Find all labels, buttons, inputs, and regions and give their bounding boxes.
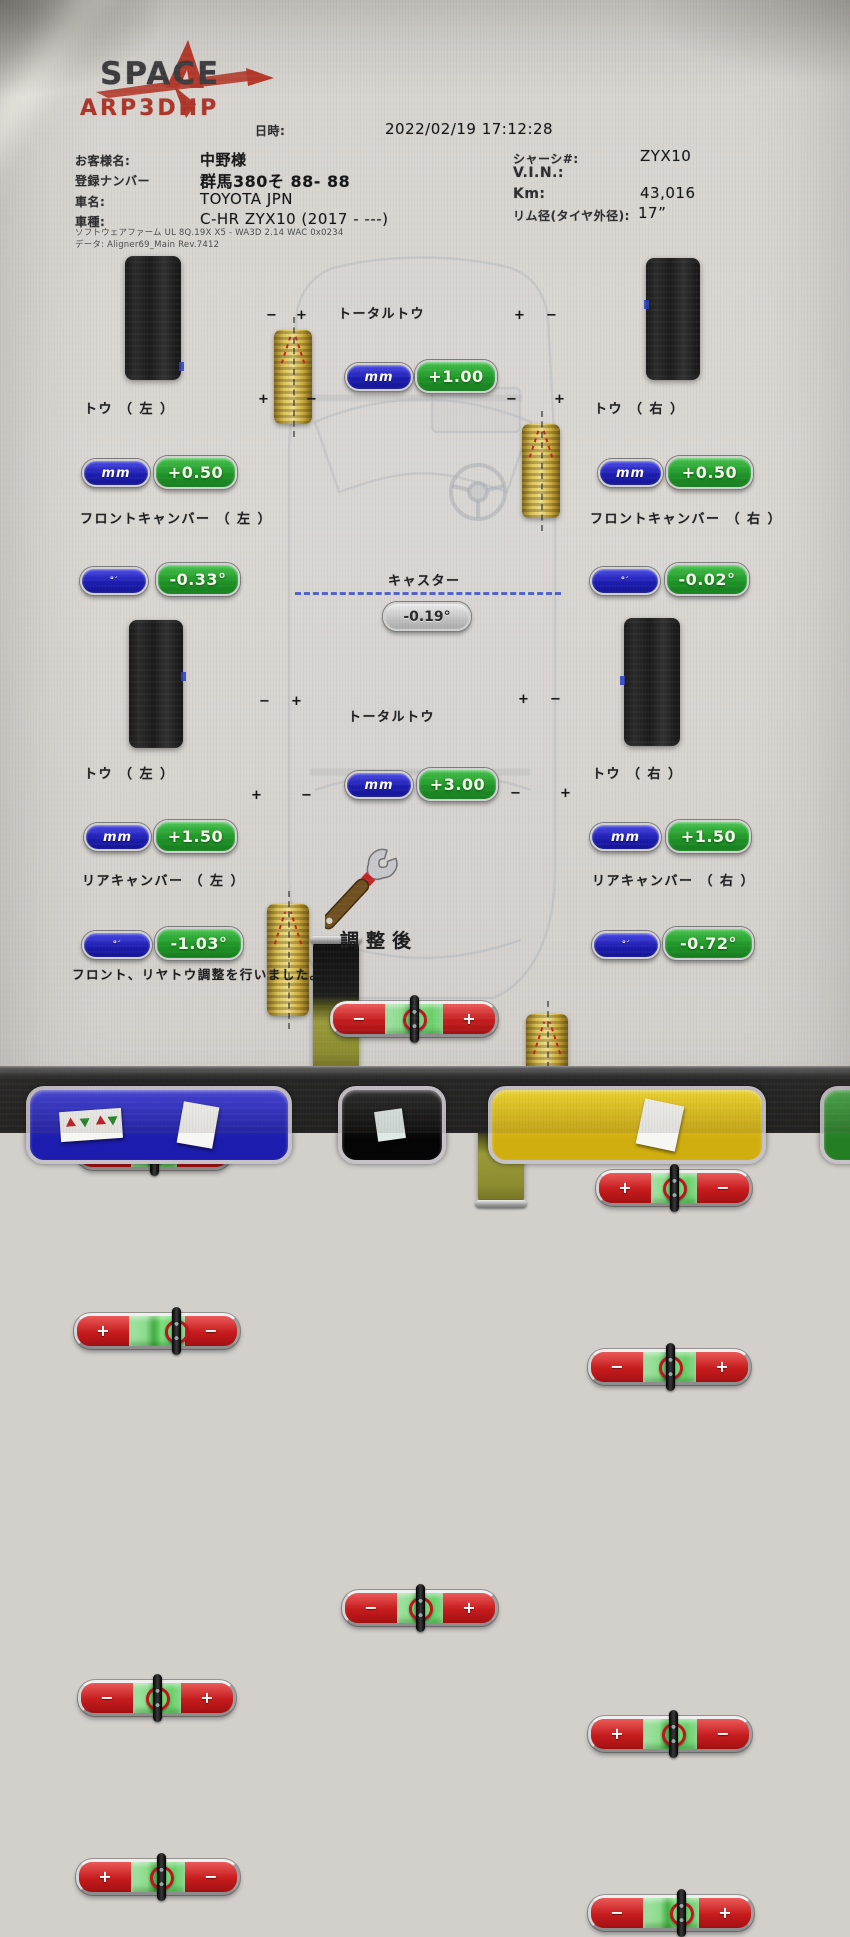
plus-cap: + (591, 1719, 643, 1749)
make-label: 車名: (75, 193, 105, 210)
datetime-value: 2022/02/19 17:12:28 (385, 120, 553, 138)
toe-sign: − (550, 692, 561, 707)
rear-total-toe-unit: mm (345, 771, 413, 799)
rim-label: リム径(タイヤ外径): (513, 207, 630, 224)
rear-toe-right-value: +1.50 (666, 820, 751, 853)
confirm-button[interactable] (820, 1086, 850, 1164)
rear-right-wheel (624, 618, 680, 746)
measurements-button[interactable] (26, 1086, 292, 1164)
front-total-toe-unit: mm (345, 363, 413, 391)
front-total-toe-label: トータルトウ (338, 303, 425, 322)
rear-left-wheel (129, 620, 183, 748)
rear-camber-left-gauge: + − (76, 1859, 240, 1895)
toe-sign: − (266, 308, 277, 323)
toe-sign: + (296, 308, 307, 323)
alignment-report-screen: SPACE ARP3DHP 日時: 2022/02/19 17:12:28 お客… (0, 0, 850, 1133)
plus-cap: + (181, 1683, 233, 1713)
chassis-value: ZYX10 (640, 147, 691, 165)
rear-camber-right-label: リアキャンバー （ 右 ） (592, 870, 755, 889)
rear-camber-right-gauge: − + (588, 1895, 754, 1931)
front-toe-right-gauge: + − (596, 1170, 752, 1206)
sensor-tick (179, 362, 184, 371)
toe-sign: − (259, 694, 270, 709)
front-left-tire-graphic (274, 330, 312, 424)
gauge-indicator (661, 1710, 685, 1758)
print-report-button[interactable] (488, 1086, 766, 1164)
rear-toe-left-value: +1.50 (154, 820, 237, 853)
front-toe-right-value: +0.50 (666, 456, 753, 489)
front-camber-left-label: フロントキャンバー （ 左 ） (80, 508, 272, 527)
plate-value: 群馬380そ 88- 88 (200, 168, 350, 192)
front-toe-right-label: トウ （ 右 ） (594, 398, 685, 417)
minus-cap: − (81, 1683, 133, 1713)
sensor-tick (644, 300, 649, 309)
caster-value: -0.19° (383, 602, 471, 631)
caster-label: キャスター (388, 570, 461, 589)
rear-total-toe-value: +3.00 (417, 768, 498, 801)
front-camber-left-unit: °′ (80, 567, 148, 595)
vin-label: V.I.N.: (513, 165, 564, 181)
datetime-label: 日時: (255, 122, 285, 139)
plus-cap: + (696, 1352, 748, 1382)
front-camber-right-unit: °′ (590, 567, 660, 595)
minus-cap: − (185, 1862, 237, 1892)
sensor-tick (181, 672, 186, 681)
rear-camber-right-value: -0.72° (663, 927, 754, 960)
rear-toe-left-unit: mm (84, 823, 151, 851)
adjustment-status: 調整後 (340, 926, 418, 953)
rear-camber-left-label: リアキャンバー （ 左 ） (82, 870, 245, 889)
caster-reference-line (295, 592, 561, 595)
minus-cap: − (185, 1316, 237, 1346)
gauge-indicator (658, 1343, 682, 1391)
bottom-toolbar (0, 1066, 850, 1133)
rear-toe-right-gauge: + − (588, 1716, 752, 1752)
rear-camber-left-value: -1.03° (155, 927, 243, 960)
plus-cap: + (79, 1862, 131, 1892)
plus-cap: + (599, 1173, 651, 1203)
gauge-indicator (164, 1307, 188, 1355)
minus-cap: − (591, 1352, 643, 1382)
gauge-indicator (669, 1889, 693, 1937)
km-label: Km: (513, 186, 546, 202)
front-right-tire-graphic (522, 424, 560, 518)
minus-cap: − (333, 1004, 385, 1034)
toe-sign: + (291, 694, 302, 709)
plate-label: 登録ナンバー (75, 172, 150, 189)
gauge-indicator (408, 1584, 432, 1632)
rear-total-toe-gauge: − + (342, 1590, 498, 1626)
front-total-toe-value: +1.00 (415, 360, 497, 393)
front-toe-left-value: +0.50 (154, 456, 237, 489)
front-camber-right-value: -0.02° (665, 563, 749, 596)
front-camber-left-gauge: + − (74, 1313, 240, 1349)
toe-sign: − (301, 788, 312, 803)
brand-name: SPACE (100, 56, 220, 92)
km-value: 43,016 (640, 184, 696, 202)
minus-cap: − (345, 1593, 397, 1623)
toe-sign: + (258, 392, 269, 407)
toe-sign: + (251, 788, 262, 803)
adjustment-note: フロント、リヤトウ調整を行いました。 (72, 964, 324, 983)
front-toe-right-unit: mm (598, 459, 663, 487)
rear-total-toe-label: トータルトウ (348, 706, 435, 725)
rear-toe-right-unit: mm (590, 823, 661, 851)
plus-cap: + (443, 1593, 495, 1623)
rear-camber-right-unit: °′ (592, 931, 660, 959)
gauge-indicator (145, 1674, 169, 1722)
alignment-data-icon (59, 1108, 123, 1142)
software-version-line2: データ: Aligner69_Main Rev.7412 (75, 238, 219, 250)
gauge-indicator (402, 995, 426, 1043)
rear-toe-left-label: トウ （ 左 ） (84, 763, 175, 782)
front-left-wheel (125, 256, 181, 380)
document-icon (177, 1101, 220, 1149)
rear-left-tire-graphic (267, 904, 309, 1016)
plus-cap: + (77, 1316, 129, 1346)
customer-name-value: 中野様 (200, 149, 247, 170)
toe-sign: − (306, 392, 317, 407)
front-total-toe-gauge: − + (330, 1001, 498, 1037)
front-camber-right-gauge: − + (588, 1349, 751, 1385)
minus-cap: − (697, 1173, 749, 1203)
make-value: TOYOTA JPN (200, 190, 293, 208)
rear-toe-right-label: トウ （ 右 ） (592, 763, 683, 782)
toe-sign: − (510, 786, 521, 801)
dark-tool-button[interactable] (338, 1086, 446, 1164)
front-toe-left-unit: mm (82, 459, 150, 487)
plus-cap: + (443, 1004, 495, 1034)
rear-toe-left-gauge: − + (78, 1680, 236, 1716)
gauge-indicator (149, 1853, 173, 1901)
front-camber-left-value: -0.33° (156, 563, 240, 596)
customer-name-label: お客様名: (75, 152, 130, 169)
report-sheet-icon (636, 1098, 685, 1151)
front-right-wheel (646, 258, 700, 380)
machine-model: ARP3DHP (80, 96, 219, 121)
software-version-line1: ソフトウェアファーム UL 8Q.19X X5 - WA3D 2.14 WAC … (75, 226, 344, 238)
toe-sign: − (506, 392, 517, 407)
gauge-indicator (662, 1164, 686, 1212)
toe-sign: − (546, 308, 557, 323)
minus-cap: − (591, 1898, 643, 1928)
rim-value: 17” (638, 204, 666, 222)
front-camber-right-label: フロントキャンバー （ 右 ） (590, 508, 782, 527)
toe-sign: + (560, 786, 571, 801)
front-toe-left-label: トウ （ 左 ） (84, 398, 175, 417)
toe-sign: + (514, 308, 525, 323)
sensor-tick (620, 676, 625, 685)
page-icon (374, 1108, 406, 1142)
toe-sign: + (554, 392, 565, 407)
rear-camber-left-unit: °′ (82, 931, 152, 959)
plus-cap: + (699, 1898, 751, 1928)
toe-sign: + (518, 692, 529, 707)
minus-cap: − (697, 1719, 749, 1749)
